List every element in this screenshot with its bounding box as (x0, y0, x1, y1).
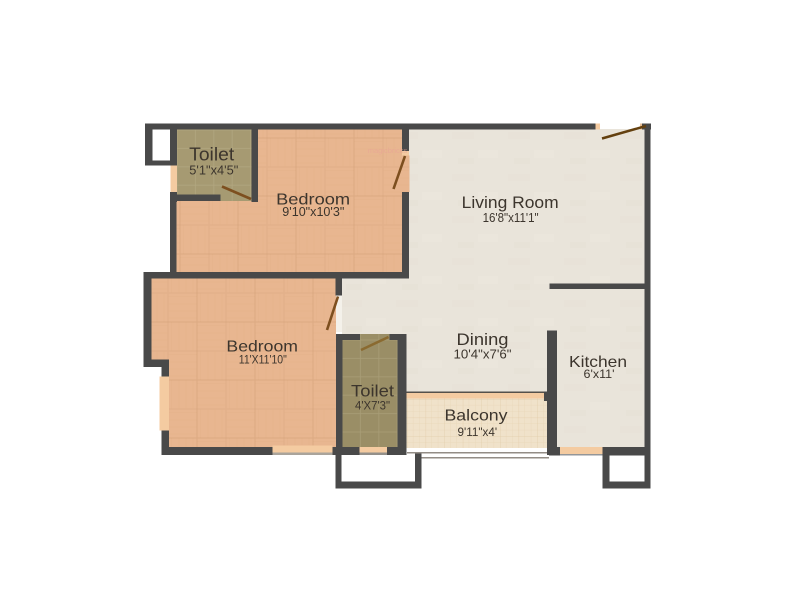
svg-text:6'x11': 6'x11' (584, 369, 615, 381)
svg-text:4'X7'3": 4'X7'3" (355, 399, 390, 413)
svg-text:Toilet: Toilet (189, 144, 234, 165)
svg-text:11'X11'10": 11'X11'10" (239, 353, 287, 367)
svg-text:5'1"x4'5": 5'1"x4'5" (189, 163, 238, 177)
svg-text:Dining: Dining (457, 331, 509, 349)
svg-text:Living Room: Living Room (462, 193, 559, 212)
svg-text:Balcony: Balcony (445, 408, 508, 425)
svg-text:9'11"x4': 9'11"x4' (458, 427, 498, 439)
svg-text:9'10"x10'3": 9'10"x10'3" (282, 205, 344, 219)
svg-text:16'8"x11'1": 16'8"x11'1" (483, 211, 539, 225)
svg-text:magicbricks: magicbricks (368, 146, 408, 155)
svg-text:10'4"x7'6": 10'4"x7'6" (454, 348, 512, 362)
